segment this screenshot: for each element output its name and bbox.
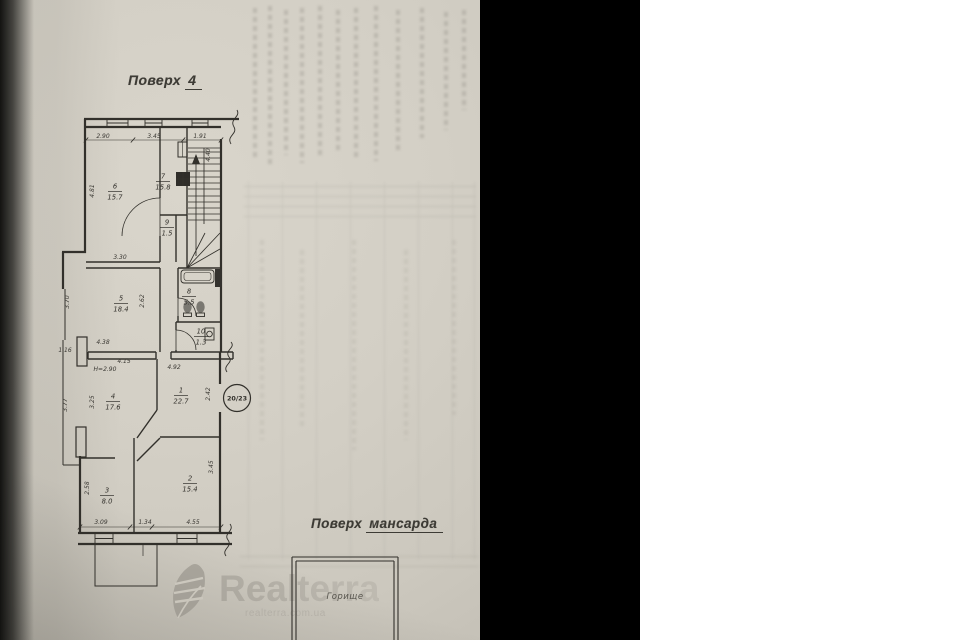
outer-thin-lines [63, 289, 87, 465]
room-num: 3 [105, 487, 109, 495]
dim-label: 1.91 [193, 133, 206, 140]
room-num: 9 [165, 219, 169, 227]
dim-label: 4.38 [96, 339, 110, 346]
circle-label: 20/23 [227, 395, 247, 403]
dim-label: 4.40 [205, 148, 212, 162]
sink-icon [196, 301, 204, 316]
flue-icon [178, 142, 187, 157]
dim-label: 3.45 [147, 133, 161, 140]
white-margin [640, 0, 960, 640]
dim-label: 3.25 [89, 395, 96, 409]
staircase [187, 148, 220, 268]
attic-title-value: мансарда [366, 516, 443, 533]
window-pane-icon [176, 172, 190, 186]
room-area: 15.7 [107, 194, 123, 202]
room-num: 4 [111, 393, 115, 401]
dim-label: 3.09 [94, 519, 108, 526]
floor4-title-label: Поверх [128, 72, 181, 88]
door-swings [122, 198, 196, 350]
dim-label: 4.81 [89, 184, 96, 197]
dim-label: 4.92 [167, 364, 181, 371]
dim-label: 2.58 [84, 481, 91, 495]
dim-label: 3.77 [62, 398, 69, 412]
bath-fixtures [176, 142, 222, 340]
attic-title-label: Поверх [311, 516, 362, 531]
attic-title: Поверх мансарда [311, 516, 443, 531]
room-area: 22.7 [173, 398, 189, 406]
room-num: 8 [187, 288, 192, 296]
document-photo: Realterra realterra.com.ua [0, 0, 480, 640]
dim-label: 1.34 [138, 519, 152, 526]
room-num: 1 [179, 387, 183, 395]
room-area: 5.5 [184, 299, 195, 307]
room-area: 1.5 [162, 230, 173, 238]
dim-label: 1.16 [58, 347, 72, 354]
room-area: 15.8 [155, 184, 171, 192]
dim-label: 2.90 [96, 133, 110, 140]
room-area: 17.6 [105, 404, 121, 412]
dim-label: 3.70 [64, 295, 71, 309]
room-num: 6 [113, 183, 118, 191]
balcony-outline [95, 544, 157, 586]
dim-label: 2.42 [205, 387, 212, 401]
dim-label: 2.62 [139, 294, 146, 308]
room-num: 2 [188, 475, 192, 483]
room-area: 15.4 [182, 486, 197, 494]
floorplan-drawing: 615.7715.891.5518.485.5101.3417.6122.721… [0, 0, 480, 640]
room-num: 10 [197, 328, 206, 336]
dim-label: 4.15 [117, 358, 131, 365]
break-marks [225, 110, 238, 556]
dim-label: 3.30 [113, 254, 127, 261]
room-num: 5 [119, 295, 123, 303]
dim-label: H=2.90 [94, 366, 117, 373]
black-band [480, 0, 640, 640]
bathtub-icon [181, 270, 214, 283]
screenshot-canvas: Realterra realterra.com.ua [0, 0, 960, 640]
attic-room-label: Горище [303, 592, 387, 602]
room-area: 8.0 [102, 498, 113, 506]
room-area: 18.4 [113, 306, 128, 314]
dim-label: 4.55 [186, 519, 200, 526]
floor4-title-value: 4 [185, 72, 202, 90]
photo-edge-shadow [0, 0, 34, 640]
room-area: 1.3 [196, 339, 207, 347]
dim-label: 3.45 [208, 460, 215, 474]
heater-icon [215, 269, 222, 287]
room-num: 7 [161, 173, 166, 181]
floor4-title: Поверх 4 [128, 72, 202, 88]
